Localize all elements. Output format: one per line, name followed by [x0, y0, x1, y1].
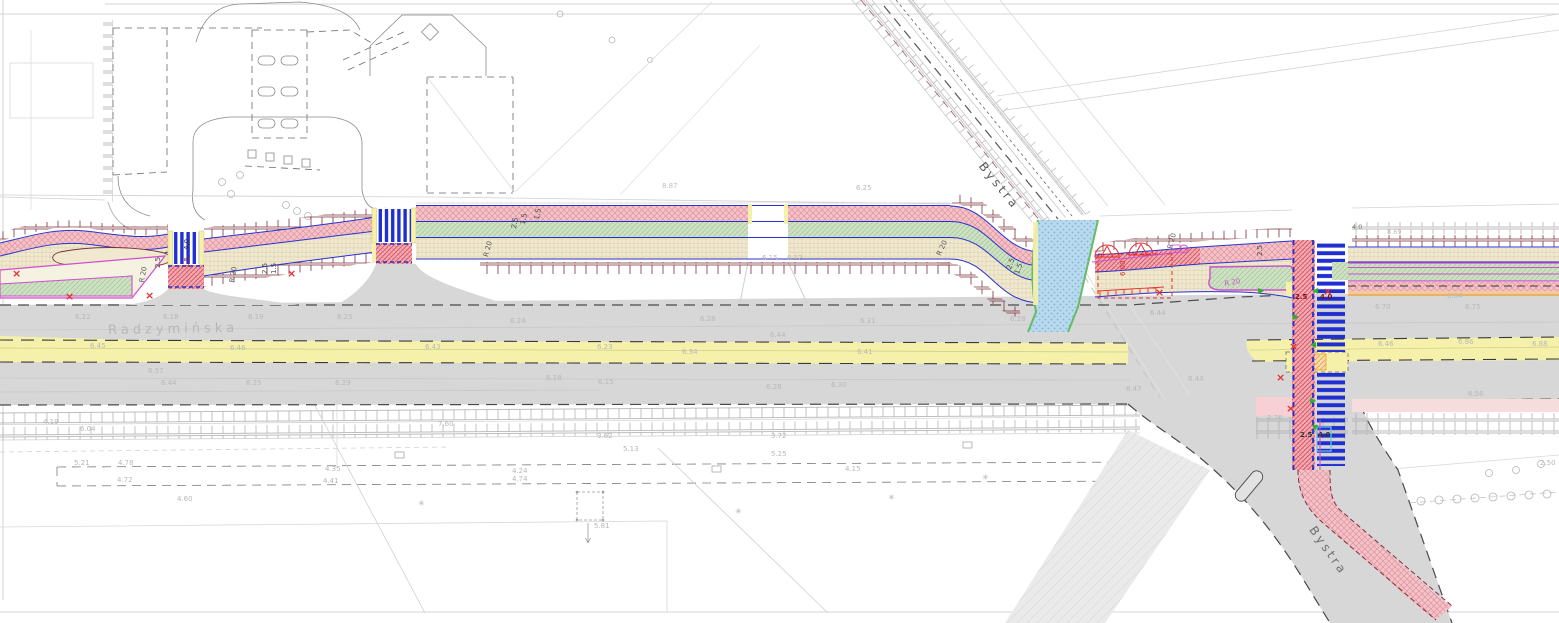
- road-design-plan: Radzymińska Bystra Bystra 2.51.54.02.51.…: [0, 0, 1559, 623]
- corridor-far-right: [1348, 222, 1559, 295]
- survey-square: [576, 491, 604, 543]
- green-island-right: [1209, 266, 1293, 290]
- bike-crossing-2: [376, 243, 412, 264]
- bike-crossing-1: [168, 265, 204, 289]
- main-pedestrian-bike-crossing: [1286, 240, 1348, 490]
- green-verge-band: [416, 222, 950, 238]
- bike-path-band: [416, 206, 950, 222]
- tree-symbols: [219, 11, 653, 220]
- corridor-left-wiggle: [0, 220, 171, 298]
- existing-south-sidewalk: [0, 404, 1143, 486]
- corridor-right-section: [1095, 228, 1293, 298]
- driveway-gap: [748, 203, 788, 263]
- corridor-segment-b: [204, 207, 376, 287]
- corridor-long-straight: [416, 203, 950, 303]
- zebra-crossing-strip: [1317, 242, 1345, 352]
- road-plan-drawing: [0, 0, 1559, 623]
- footpath-band: [416, 238, 950, 259]
- pedestrian-crossing-2: [372, 208, 416, 264]
- bike-crossing-strip: [1292, 240, 1315, 470]
- bystra-north-street: [852, 0, 1165, 222]
- pedestrian-crossing-1: [168, 231, 204, 289]
